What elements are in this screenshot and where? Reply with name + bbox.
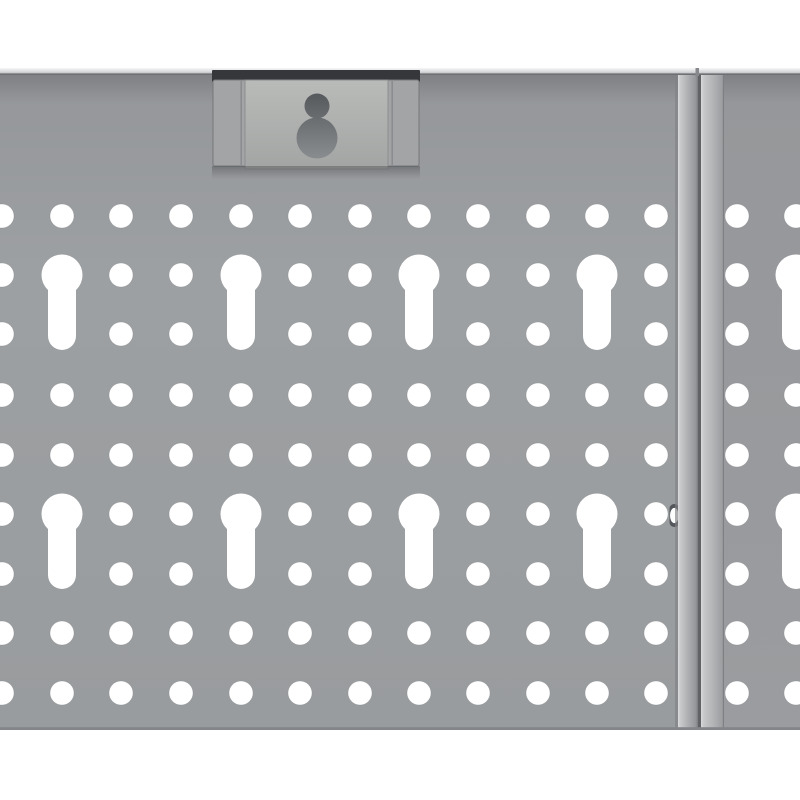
peg-hole: [644, 263, 668, 287]
panel-bottom-edge: [0, 727, 800, 730]
seam-edge-shadow: [675, 75, 678, 728]
peg-hole: [288, 681, 312, 705]
peg-hole: [725, 383, 749, 407]
peg-hole: [466, 621, 490, 645]
keyhole-slot-stem: [48, 267, 76, 350]
peg-hole: [50, 621, 74, 645]
peg-hole: [725, 502, 749, 526]
peg-hole: [526, 204, 550, 228]
peg-hole: [229, 383, 253, 407]
peg-hole: [229, 621, 253, 645]
peg-hole: [585, 383, 609, 407]
peg-hole: [50, 443, 74, 467]
bracket-drop-shadow: [212, 166, 420, 179]
peg-hole: [348, 383, 372, 407]
seam-strip-right: [701, 75, 724, 728]
bracket-keyhole-top: [305, 94, 330, 119]
peg-hole: [229, 681, 253, 705]
peg-hole: [109, 383, 133, 407]
peg-hole: [725, 621, 749, 645]
peg-hole: [466, 322, 490, 346]
peg-hole: [109, 621, 133, 645]
peg-hole: [526, 443, 550, 467]
peg-hole: [526, 263, 550, 287]
peg-hole: [109, 263, 133, 287]
peg-hole: [725, 204, 749, 228]
peg-hole: [644, 204, 668, 228]
peg-hole: [169, 621, 193, 645]
peg-hole: [348, 562, 372, 586]
peg-hole: [229, 204, 253, 228]
peg-hole: [526, 681, 550, 705]
peg-hole: [407, 443, 431, 467]
peg-hole: [585, 621, 609, 645]
peg-hole: [585, 443, 609, 467]
peg-hole: [644, 681, 668, 705]
peg-hole: [109, 443, 133, 467]
peg-hole: [725, 681, 749, 705]
keyhole-slot-stem: [583, 267, 611, 350]
peg-hole: [407, 383, 431, 407]
peg-hole: [288, 204, 312, 228]
peg-hole: [50, 383, 74, 407]
bracket-crease: [392, 81, 393, 165]
keyhole-slot-stem: [405, 267, 433, 350]
peg-hole: [229, 443, 253, 467]
peg-hole: [109, 502, 133, 526]
peg-hole: [644, 383, 668, 407]
peg-hole: [288, 383, 312, 407]
peg-hole: [644, 443, 668, 467]
peg-hole: [466, 443, 490, 467]
peg-hole: [585, 204, 609, 228]
seam-strip-left: [678, 75, 698, 728]
keyhole-slot-stem: [227, 267, 255, 350]
keyhole-slot-stem: [227, 506, 255, 589]
peg-hole: [109, 562, 133, 586]
peg-hole: [348, 443, 372, 467]
peg-hole: [526, 322, 550, 346]
peg-hole: [466, 681, 490, 705]
peg-hole: [644, 562, 668, 586]
keyhole-slot-stem: [48, 506, 76, 589]
peg-hole: [644, 322, 668, 346]
peg-hole: [644, 502, 668, 526]
peg-hole: [466, 263, 490, 287]
peg-hole: [50, 681, 74, 705]
peg-hole: [348, 263, 372, 287]
peg-hole: [109, 322, 133, 346]
peg-hole: [169, 502, 193, 526]
peg-hole: [288, 562, 312, 586]
peg-hole: [109, 681, 133, 705]
peg-hole: [288, 263, 312, 287]
peg-hole: [466, 204, 490, 228]
peg-hole: [407, 621, 431, 645]
peg-hole: [407, 681, 431, 705]
peg-hole: [348, 204, 372, 228]
peg-hole: [466, 502, 490, 526]
peg-hole: [466, 562, 490, 586]
keyhole-slot-stem: [782, 506, 800, 589]
peg-hole: [288, 443, 312, 467]
peg-hole: [526, 562, 550, 586]
seam-gap: [698, 75, 701, 728]
bracket-keyhole-bottom: [297, 118, 338, 159]
panel-top-rim-notch: [696, 68, 700, 76]
keyhole-slot-stem: [405, 506, 433, 589]
peg-hole: [169, 443, 193, 467]
peg-hole: [348, 322, 372, 346]
pegboard-photo: [0, 0, 800, 800]
peg-hole: [407, 204, 431, 228]
peg-hole: [348, 621, 372, 645]
peg-hole: [169, 204, 193, 228]
peg-hole: [169, 383, 193, 407]
peg-hole: [725, 443, 749, 467]
peg-hole: [288, 322, 312, 346]
peg-hole: [725, 562, 749, 586]
pegboard-scene: [0, 0, 800, 800]
peg-hole: [585, 681, 609, 705]
bracket-crease: [241, 81, 242, 165]
peg-hole: [466, 383, 490, 407]
peg-hole: [169, 562, 193, 586]
peg-hole: [644, 621, 668, 645]
peg-hole: [169, 681, 193, 705]
peg-hole: [348, 502, 372, 526]
keyhole-slot-stem: [583, 506, 611, 589]
peg-hole: [725, 322, 749, 346]
peg-hole: [348, 681, 372, 705]
keyhole-slot-stem: [782, 267, 800, 350]
peg-hole: [288, 502, 312, 526]
mounting-bracket: [212, 70, 420, 179]
panel-seam: [675, 75, 724, 728]
peg-hole: [50, 204, 74, 228]
peg-hole: [109, 204, 133, 228]
peg-hole: [169, 322, 193, 346]
peg-hole: [526, 502, 550, 526]
peg-hole: [526, 383, 550, 407]
peg-hole: [288, 621, 312, 645]
peg-hole: [169, 263, 193, 287]
peg-hole: [526, 621, 550, 645]
peg-hole: [725, 263, 749, 287]
